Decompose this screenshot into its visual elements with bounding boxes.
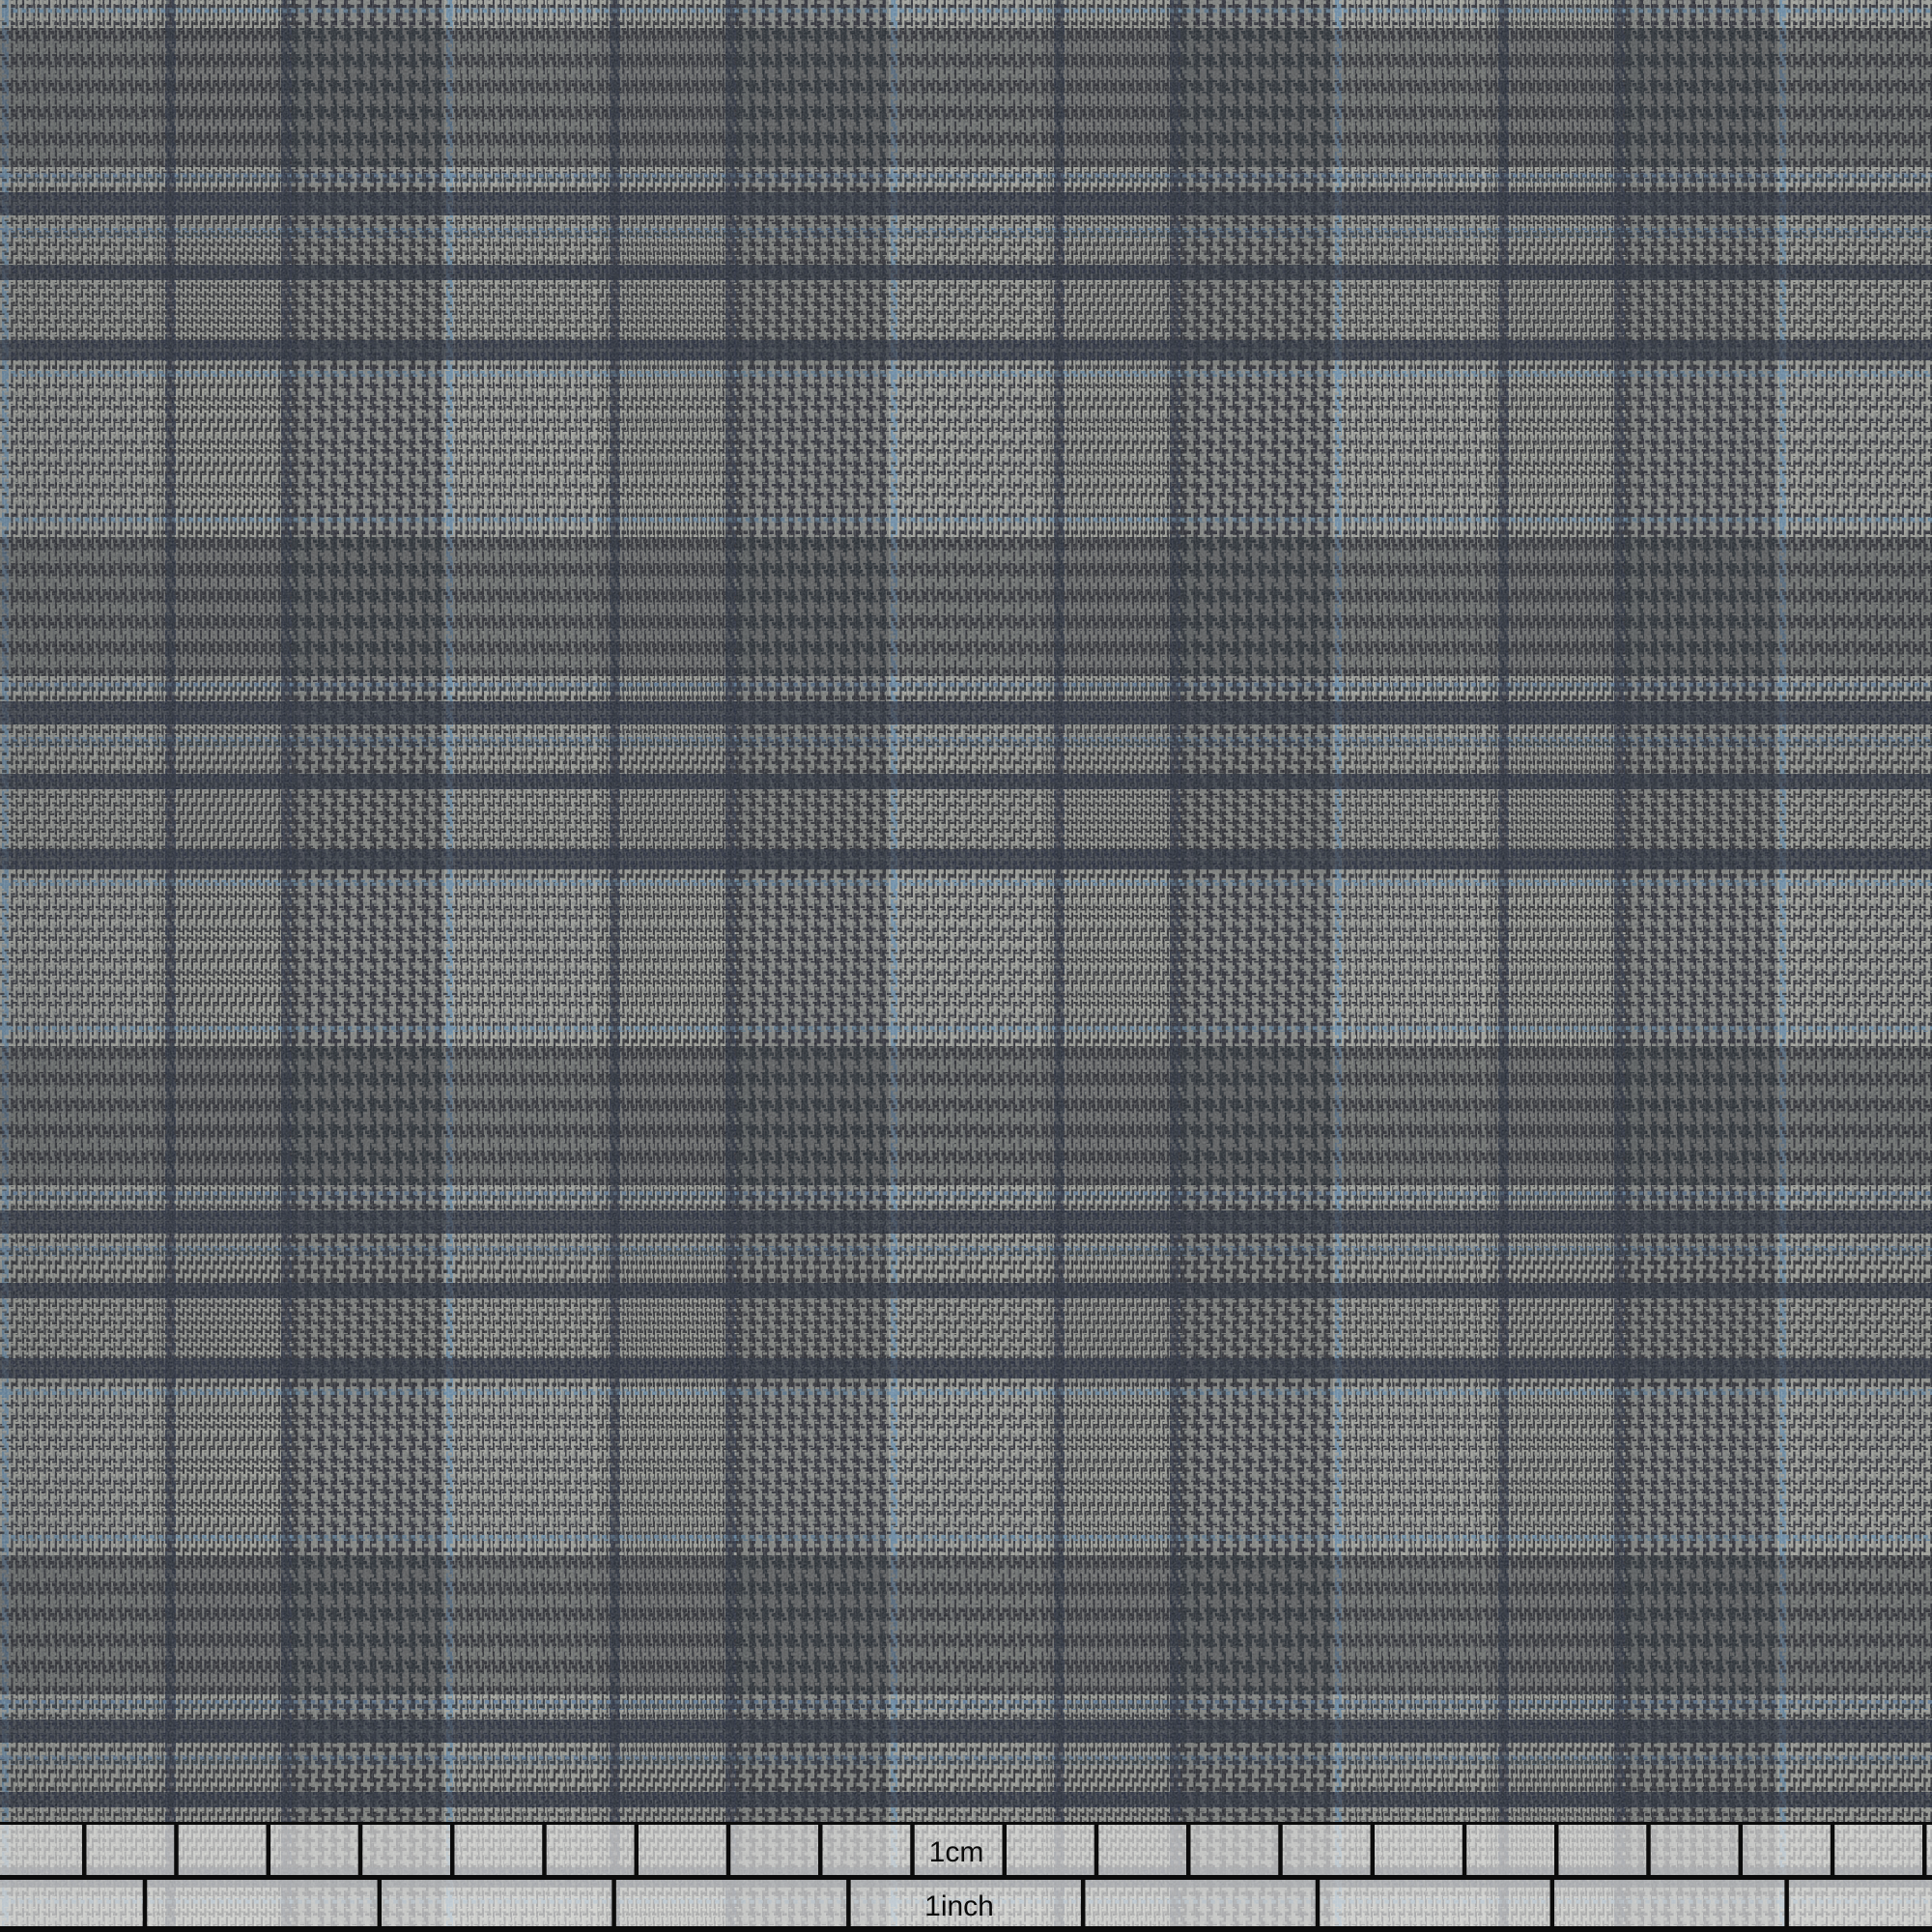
svg-text:1cm: 1cm [929, 1836, 984, 1868]
svg-text:1inch: 1inch [924, 1890, 994, 1922]
